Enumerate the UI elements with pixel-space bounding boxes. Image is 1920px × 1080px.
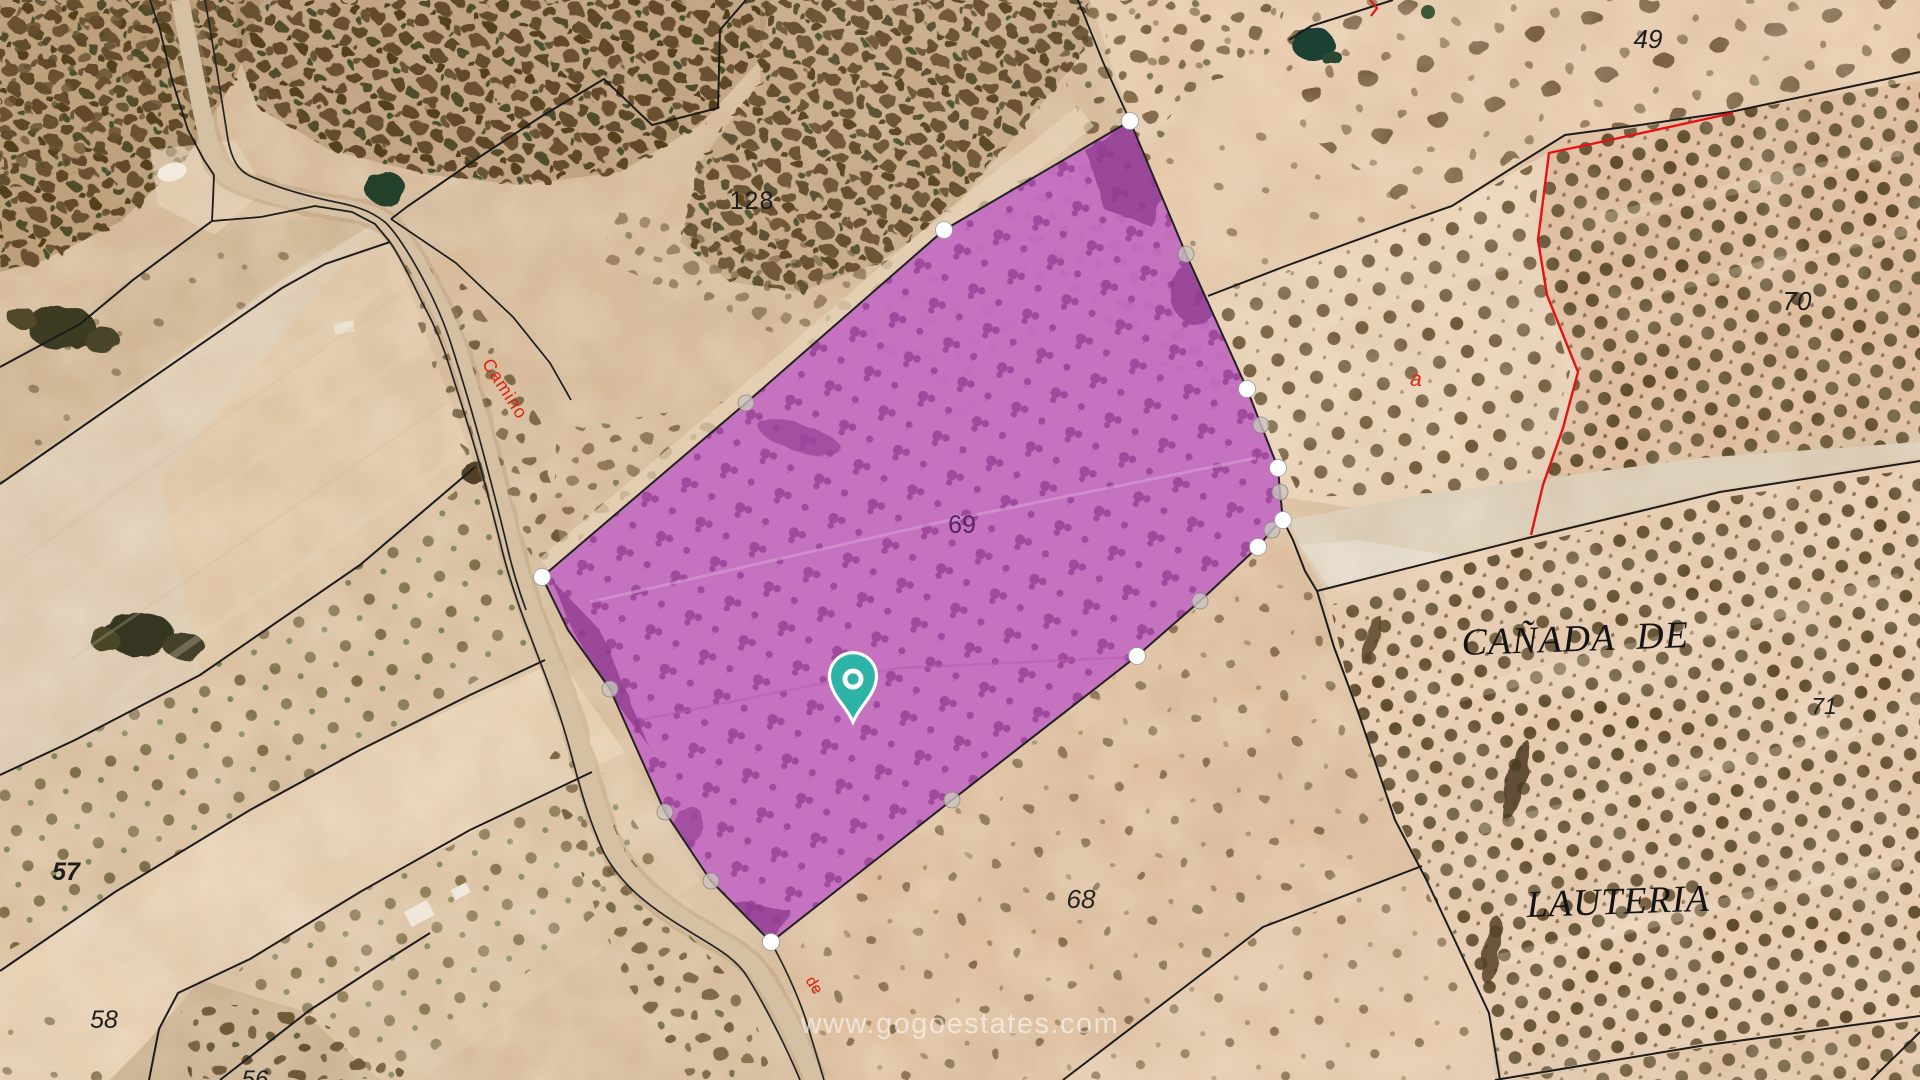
svg-text:LAUTERIA: LAUTERIA <box>1525 878 1711 926</box>
svg-text:70: 70 <box>1783 286 1812 316</box>
svg-text:57: 57 <box>52 858 81 886</box>
svg-text:www.gogoestates.com: www.gogoestates.com <box>800 1008 1120 1040</box>
svg-text:CAÑADA DE: CAÑADA DE <box>1461 614 1690 664</box>
svg-text:a: a <box>1410 368 1422 391</box>
svg-text:49: 49 <box>1634 24 1663 54</box>
svg-text:58: 58 <box>90 1006 118 1034</box>
svg-text:69: 69 <box>948 511 976 539</box>
svg-text:128: 128 <box>730 187 775 215</box>
svg-text:71: 71 <box>1811 693 1837 719</box>
svg-text:56: 56 <box>242 1066 269 1080</box>
svg-text:68: 68 <box>1067 884 1096 914</box>
